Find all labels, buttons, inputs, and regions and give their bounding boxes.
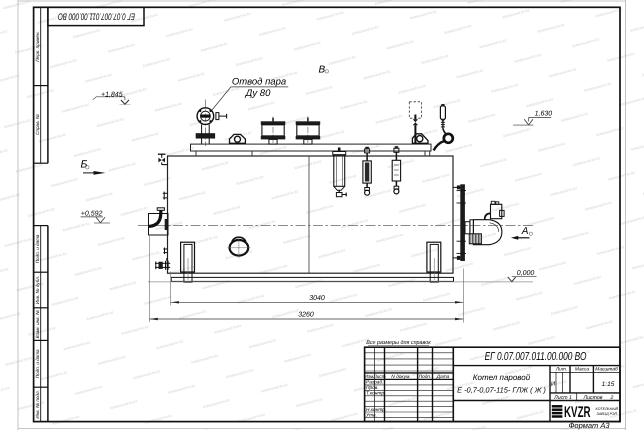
svg-text:Котел паровой: Котел паровой — [473, 373, 531, 382]
svg-text:2: 2 — [610, 395, 614, 401]
svg-text:Дата: Дата — [436, 374, 450, 380]
svg-text:Ду 80: Ду 80 — [245, 88, 271, 99]
svg-text:0,000: 0,000 — [517, 270, 535, 277]
svg-text:А: А — [521, 226, 529, 237]
svg-text:N докум.: N докум. — [391, 374, 410, 380]
svg-text:Разраб.: Разраб. — [366, 380, 383, 386]
svg-text:Подп. и дата: Подп. и дата — [35, 349, 40, 378]
svg-text:Перв. примен.: Перв. примен. — [35, 31, 40, 62]
svg-text:Подп.: Подп. — [419, 374, 432, 380]
svg-text:1:15: 1:15 — [602, 381, 615, 388]
svg-text:И: И — [551, 381, 556, 388]
svg-text:Масштаб: Масштаб — [595, 367, 618, 373]
svg-text:Т.контр.: Т.контр. — [366, 391, 385, 397]
svg-text:Листов: Листов — [583, 395, 603, 401]
svg-text:KVZR: KVZR — [564, 404, 591, 421]
svg-text:1,630: 1,630 — [535, 110, 553, 117]
svg-text:Справ. №: Справ. № — [35, 114, 40, 135]
svg-text:3260: 3260 — [298, 312, 314, 319]
svg-text:+1,845: +1,845 — [101, 91, 123, 98]
svg-text:Отвод пара: Отвод пара — [232, 77, 286, 88]
svg-text:Инв. № дубл.: Инв. № дубл. — [35, 276, 40, 304]
svg-text:ЕГ 0.07.007.011.00.000 ВО: ЕГ 0.07.007.011.00.000 ВО — [58, 11, 135, 22]
svg-text:Масса: Масса — [575, 367, 590, 373]
svg-text:+0,592: +0,592 — [81, 210, 103, 217]
svg-text:Е -0,7-0,07-115- ГЛЖ ( Ж ): Е -0,7-0,07-115- ГЛЖ ( Ж ) — [457, 386, 546, 395]
svg-text:Все размеры для справок: Все размеры для справок — [366, 340, 431, 346]
svg-text:ЗАВОД РЭП: ЗАВОД РЭП — [597, 412, 618, 416]
svg-text:Лист: Лист — [372, 374, 385, 380]
svg-text:Лист 1: Лист 1 — [553, 395, 572, 401]
svg-text:Утв.: Утв. — [366, 412, 377, 418]
svg-text:3040: 3040 — [309, 295, 325, 302]
svg-text:Н.контр.: Н.контр. — [366, 407, 386, 413]
svg-text:Пров.: Пров. — [366, 385, 379, 391]
svg-text:Взам. инв. №: Взам. инв. № — [35, 310, 40, 338]
svg-text:Подп. и дата: Подп. и дата — [35, 234, 40, 263]
svg-text:ЕГ 0.07.007.011.00.000 ВО: ЕГ 0.07.007.011.00.000 ВО — [485, 351, 587, 363]
svg-text:КОТЕЛЬНЫЙ: КОТЕЛЬНЫЙ — [596, 406, 619, 411]
svg-text:В: В — [319, 64, 326, 75]
svg-text:Инв. № подл.: Инв. № подл. — [35, 390, 40, 419]
svg-text:Лит.: Лит. — [555, 367, 567, 373]
svg-text:Формат А3: Формат А3 — [568, 421, 610, 430]
